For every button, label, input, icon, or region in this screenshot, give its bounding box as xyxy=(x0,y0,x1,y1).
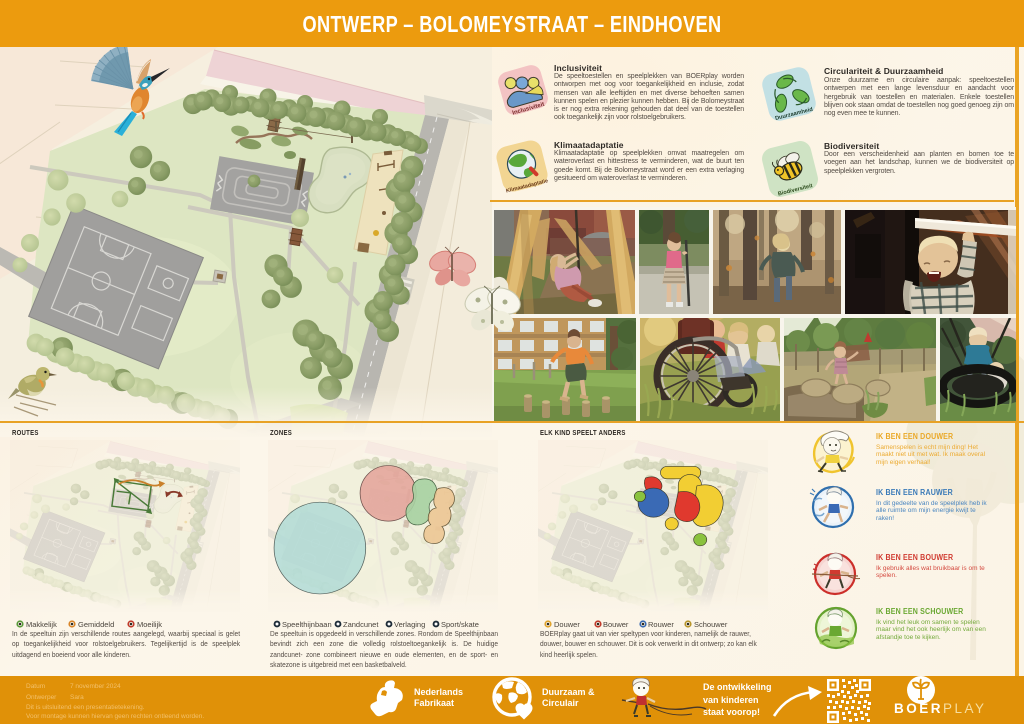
svg-text:Sport/skate: Sport/skate xyxy=(441,620,479,629)
svg-text:Zandcunet: Zandcunet xyxy=(343,620,379,629)
svg-text:Douwer: Douwer xyxy=(554,620,580,629)
svg-text:Schouwer: Schouwer xyxy=(694,620,728,629)
svg-text:Moeilijk: Moeilijk xyxy=(137,620,162,629)
svg-text:Bouwer: Bouwer xyxy=(603,620,629,629)
svg-text:Verlaging: Verlaging xyxy=(394,620,425,629)
svg-text:Speelthijnbaan: Speelthijnbaan xyxy=(282,620,332,629)
svg-text:Gemiddeld: Gemiddeld xyxy=(78,620,114,629)
svg-text:Rouwer: Rouwer xyxy=(648,620,674,629)
svg-text:Makkelijk: Makkelijk xyxy=(26,620,57,629)
